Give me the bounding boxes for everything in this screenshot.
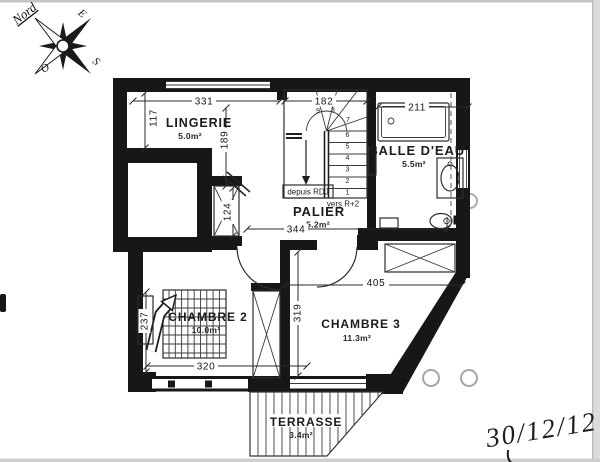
step-4: 4 (346, 155, 350, 162)
step-5: 5 (346, 144, 350, 151)
salle-eau-area: 5.5m² (402, 159, 426, 169)
wall-left-upper (113, 78, 127, 154)
compass-south-label: S (90, 55, 102, 68)
compass-east-label: E (75, 6, 89, 20)
dim-lingerie-width: 331 (130, 96, 284, 108)
lingerie-area: 5.0m² (178, 131, 202, 141)
door-arc-chambre3 (317, 247, 357, 287)
chambre2-features (138, 290, 226, 358)
chambre2-area: 10.0m² (192, 325, 221, 335)
chambre3-label: CHAMBRE 3 (321, 317, 400, 331)
step-8: 8 (331, 107, 335, 114)
radiator (380, 218, 398, 228)
compass-north-label: Nord (8, 0, 39, 28)
step-1: 1 (346, 190, 350, 197)
svg-text:405: 405 (367, 278, 386, 289)
svg-text:319: 319 (293, 304, 304, 323)
shaft-void (128, 163, 197, 237)
window-chambre2-south (152, 376, 248, 392)
dim-lingerie-left: 117 (142, 90, 160, 152)
terrasse-area: 3.4m² (289, 430, 313, 440)
dim-chambre3-height: 319 (292, 249, 304, 380)
stair-direction-arrowhead (302, 176, 310, 185)
palier-label: PALIER (293, 204, 345, 219)
svg-text:320: 320 (197, 362, 216, 373)
svg-text:237: 237 (140, 312, 151, 331)
handwritten-date: 30/12/12 (483, 406, 599, 453)
floor-plan-svg: Nord E S O (0, 0, 600, 462)
step-6: 6 (346, 132, 350, 139)
compass-rose: Nord E S O (8, 0, 102, 76)
staircase: 1 2 3 4 5 6 7 8 9 depuis RDJ vers R+2 (283, 90, 367, 209)
svg-text:117: 117 (149, 109, 160, 127)
scanned-floor-plan: Nord E S O (0, 0, 600, 462)
step-2: 2 (346, 178, 350, 185)
chambre2-label: CHAMBRE 2 (168, 310, 247, 324)
stair-arc (307, 111, 347, 131)
svg-text:189: 189 (220, 131, 231, 150)
closet-ch2-ch3 (253, 291, 280, 378)
stair-from-label: depuis RDJ (287, 188, 328, 197)
wall-palier-seg3 (357, 235, 378, 250)
wall-bottom-left-corner (128, 372, 156, 392)
terrasse-group: TERRASSE 3.4m² (250, 392, 383, 456)
toilet (430, 214, 461, 229)
compass-west-label: O (39, 61, 52, 75)
closet-bathroom-south (385, 244, 455, 272)
window-chambre3-terrasse (290, 376, 366, 392)
stair-break-marks (286, 134, 302, 138)
terrasse-label: TERRASSE (270, 415, 343, 429)
compass-hub (57, 40, 69, 52)
svg-text:344: 344 (287, 225, 306, 236)
closet-cap (251, 283, 290, 291)
salle-eau-label: SALLE D'EAU (369, 143, 465, 158)
chambre3-area: 11.3m² (343, 333, 371, 343)
svg-text:331: 331 (195, 97, 214, 108)
lingerie-label: LINGERIE (166, 116, 232, 130)
palier-area: 5.2m² (306, 220, 330, 230)
dim-chambre3-width: 405 (282, 277, 466, 290)
wall-ch2-ch3 (280, 247, 290, 380)
step-9: 9 (316, 108, 320, 115)
handwritten-annotation: 30/12/12 (483, 406, 600, 462)
window-lingerie-north (166, 81, 270, 89)
duct-cap-bottom (211, 236, 242, 246)
dim-stairs-width: 182 (282, 96, 371, 108)
svg-text:211: 211 (408, 103, 426, 114)
svg-text:124: 124 (223, 203, 234, 222)
step-7: 7 (346, 117, 350, 124)
dim-duct-height: 124 (222, 185, 237, 240)
svg-text:182: 182 (315, 97, 334, 108)
step-3: 3 (346, 167, 350, 174)
